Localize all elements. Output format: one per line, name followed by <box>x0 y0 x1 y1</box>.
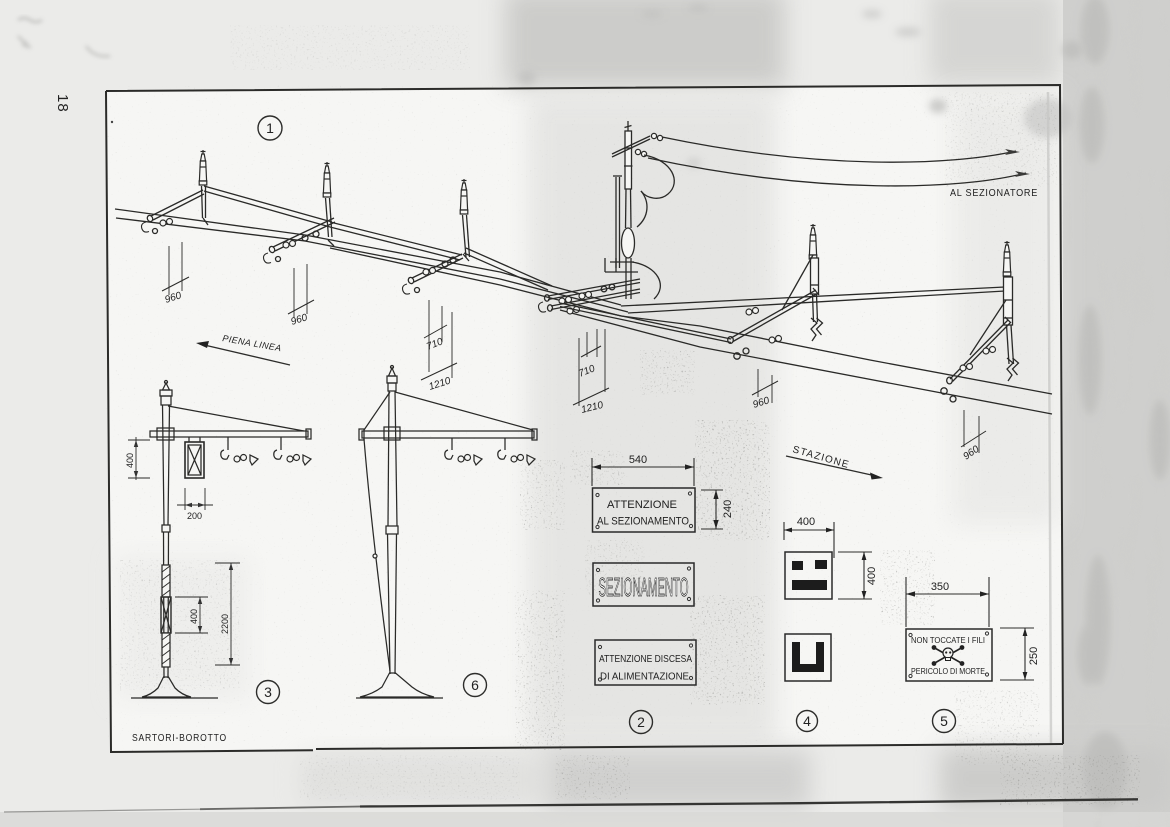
svg-text:250: 250 <box>1028 647 1040 665</box>
svg-text:400: 400 <box>866 567 878 585</box>
svg-text:200: 200 <box>187 511 202 521</box>
svg-text:3: 3 <box>264 684 272 700</box>
svg-text:PERICOLO DI MORTE: PERICOLO DI MORTE <box>911 666 985 676</box>
svg-text:AL SEZIONAMENTO: AL SEZIONAMENTO <box>597 516 689 528</box>
svg-text:SEZIONAMENTO: SEZIONAMENTO <box>599 572 689 602</box>
svg-text:ATTENZIONE: ATTENZIONE <box>607 499 677 511</box>
svg-text:240: 240 <box>722 500 734 518</box>
svg-text:1: 1 <box>266 120 274 136</box>
svg-text:2: 2 <box>637 714 645 730</box>
svg-text:400: 400 <box>125 453 135 468</box>
svg-text:18: 18 <box>54 94 71 113</box>
svg-text:6: 6 <box>471 677 479 693</box>
svg-text:NON TOCCATE I FILI: NON TOCCATE I FILI <box>911 635 985 645</box>
svg-text:400: 400 <box>189 609 199 624</box>
svg-text:400: 400 <box>797 516 815 528</box>
svg-text:350: 350 <box>931 581 949 593</box>
svg-text:AL SEZIONATORE: AL SEZIONATORE <box>950 188 1038 199</box>
svg-text:SARTORI-BOROTTO: SARTORI-BOROTTO <box>132 732 227 744</box>
svg-text:540: 540 <box>629 454 647 466</box>
svg-text:2200: 2200 <box>220 614 230 634</box>
svg-text:ATTENZIONE DISCESA: ATTENZIONE DISCESA <box>599 653 692 665</box>
svg-text:5: 5 <box>940 713 948 729</box>
svg-text:DI ALIMENTAZIONE: DI ALIMENTAZIONE <box>600 671 689 683</box>
svg-text:4: 4 <box>803 713 811 729</box>
